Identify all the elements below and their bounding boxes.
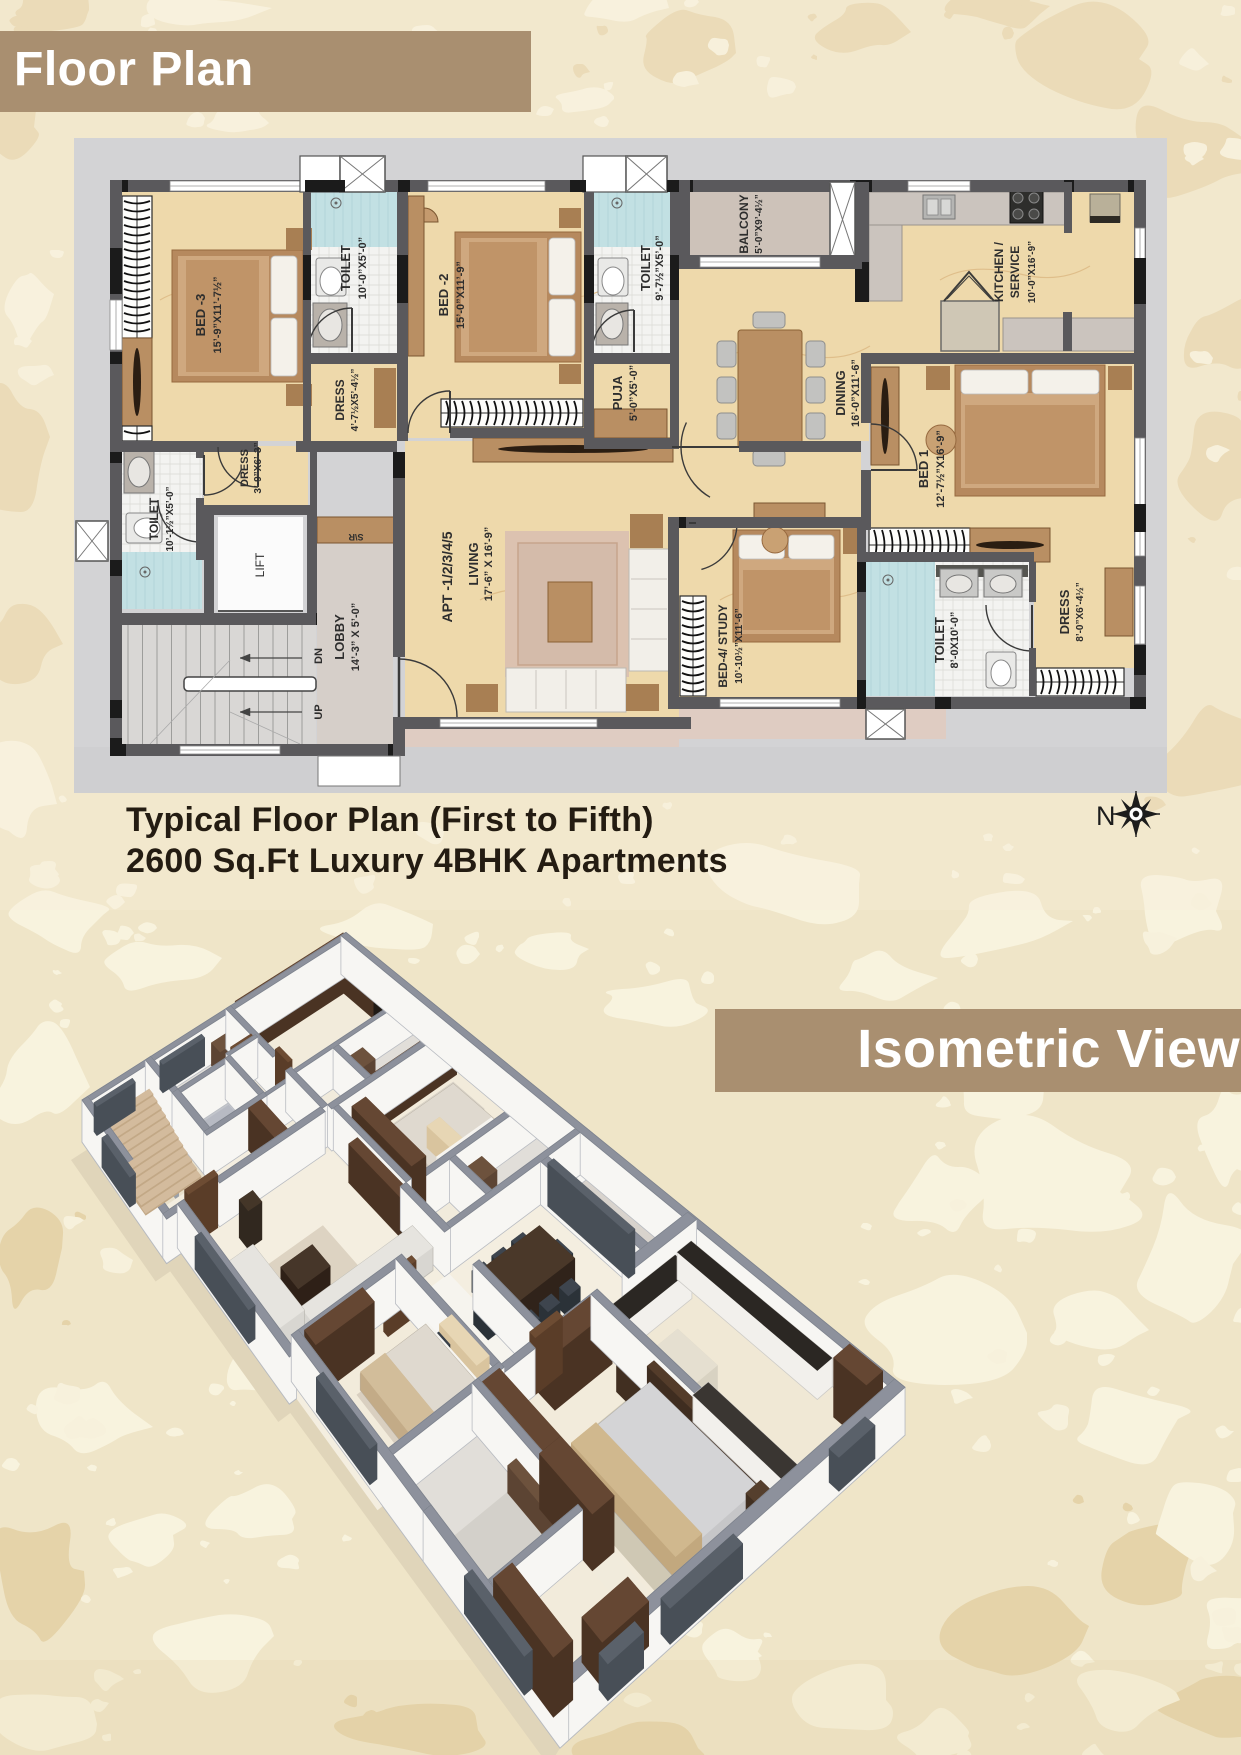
svg-text:Isometric View: Isometric View (857, 1019, 1240, 1079)
svg-text:DRESS: DRESS (1057, 589, 1072, 634)
svg-text:PUJA: PUJA (610, 375, 625, 410)
svg-text:DN: DN (313, 648, 325, 664)
svg-text:10’-0”X16’-9”: 10’-0”X16’-9” (1027, 241, 1038, 303)
svg-text:BED -3: BED -3 (193, 294, 208, 337)
svg-text:8’-0X10’-0”: 8’-0X10’-0” (949, 612, 961, 669)
svg-text:16’-0”X11’-6”: 16’-0”X11’-6” (850, 359, 862, 427)
svg-text:14’-3” X 5’-0”: 14’-3” X 5’-0” (350, 603, 362, 671)
svg-text:S\R: S\R (348, 532, 364, 542)
svg-text:12’-7½”X16’-9”: 12’-7½”X16’-9” (935, 430, 947, 508)
svg-text:BALCONY: BALCONY (737, 194, 751, 253)
svg-text:UP: UP (313, 704, 325, 719)
svg-text:LOBBY: LOBBY (332, 614, 347, 660)
svg-text:Typical Floor Plan (First to F: Typical Floor Plan (First to Fifth) (126, 801, 654, 839)
svg-text:3’-9”X6’-3”: 3’-9”X6’-3” (253, 442, 264, 493)
svg-text:TOILET: TOILET (147, 497, 161, 540)
svg-text:TOILET: TOILET (338, 245, 353, 291)
svg-text:BED 1: BED 1 (916, 450, 931, 488)
svg-text:9’-7½”X5’-0”: 9’-7½”X5’-0” (654, 235, 666, 300)
svg-text:SERVICE: SERVICE (1008, 246, 1022, 298)
svg-text:BED -2: BED -2 (436, 274, 451, 317)
svg-text:10’-0”X5’-0”: 10’-0”X5’-0” (357, 237, 369, 299)
svg-text:17’-6” X 16’-9”: 17’-6” X 16’-9” (483, 527, 495, 602)
svg-text:APT -1/2/3/4/5: APT -1/2/3/4/5 (439, 531, 455, 622)
svg-text:DINING: DINING (833, 370, 848, 416)
svg-text:DRESS: DRESS (239, 449, 251, 487)
svg-text:4’-7½X5’-4½”: 4’-7½X5’-4½” (350, 369, 361, 432)
svg-text:KITCHEN /: KITCHEN / (992, 241, 1006, 302)
svg-text:LIVING: LIVING (466, 542, 481, 585)
svg-text:DRESS: DRESS (333, 379, 347, 420)
svg-text:TOILET: TOILET (638, 245, 653, 291)
svg-text:N: N (1096, 801, 1116, 831)
svg-text:10’-1½”X5’-0”: 10’-1½”X5’-0” (165, 486, 176, 551)
svg-text:2600 Sq.Ft Luxury 4BHK Apartme: 2600 Sq.Ft Luxury 4BHK Apartments (126, 842, 728, 880)
svg-text:TOILET: TOILET (932, 617, 947, 663)
svg-text:15’-0”X11’-9”: 15’-0”X11’-9” (455, 261, 467, 329)
svg-text:Floor Plan: Floor Plan (14, 43, 254, 96)
svg-text:8’-0”X6’-4½”: 8’-0”X6’-4½” (1075, 582, 1086, 641)
svg-text:15’-9”X11’-7½”: 15’-9”X11’-7½” (212, 276, 224, 353)
svg-text:5’-0”X5’-0”: 5’-0”X5’-0” (628, 365, 640, 421)
svg-text:5’-0”X9’-4½”: 5’-0”X9’-4½” (754, 194, 765, 253)
svg-text:10’-10½”X11’-6”: 10’-10½”X11’-6” (734, 608, 745, 684)
svg-text:BED-4/ STUDY: BED-4/ STUDY (716, 604, 730, 687)
svg-text:LIFT: LIFT (253, 552, 267, 577)
